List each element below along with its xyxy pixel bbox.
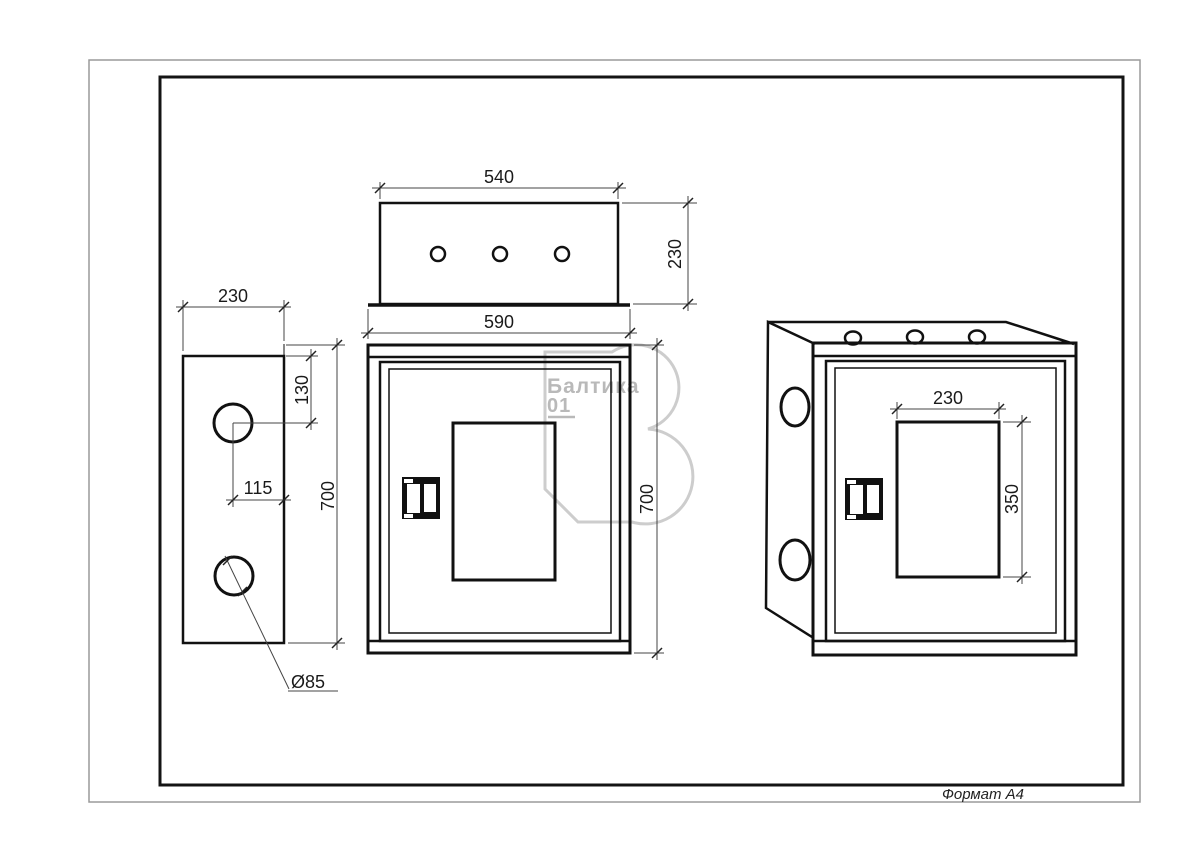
- iso-side-hole-2: [780, 540, 810, 580]
- leader-hole-diameter: [223, 556, 338, 691]
- dim-label-side-hole-top: 130: [292, 375, 312, 405]
- technical-drawing: Балтика 01 540 230 590: [0, 0, 1200, 848]
- iso-side-hole-1: [781, 388, 809, 426]
- front-window: [453, 423, 555, 580]
- side-hole-2: [215, 557, 253, 595]
- top-hole-1: [431, 247, 445, 261]
- top-hole-3: [555, 247, 569, 261]
- watermark-number: 01: [547, 395, 571, 417]
- front-handle: [402, 477, 440, 519]
- dim-label-side-hole-center: 115: [244, 478, 273, 498]
- iso-handle: [845, 478, 883, 520]
- dim-label-top-width: 540: [484, 167, 514, 187]
- dim-label-side-hole-dia: Ø85: [291, 672, 325, 692]
- format-label: Формат А4: [942, 786, 1024, 803]
- top-hole-2: [493, 247, 507, 261]
- iso-window: [897, 422, 999, 577]
- drawing-sheet: Балтика 01 540 230 590: [0, 0, 1200, 848]
- sheet-border: [89, 60, 1140, 802]
- iso-view: [766, 322, 1076, 655]
- dim-label-top-depth: 230: [665, 239, 685, 269]
- dim-label-iso-window-height: 350: [1002, 484, 1022, 514]
- dim-label-side-width: 230: [218, 286, 248, 306]
- dim-top-depth: [622, 196, 697, 311]
- top-view: [368, 203, 630, 305]
- dim-label-flange-width: 590: [484, 312, 514, 332]
- dim-label-iso-window-width: 230: [933, 388, 963, 408]
- dim-label-front-height: 700: [637, 484, 657, 514]
- iso-side-panel: [766, 322, 815, 637]
- dim-label-side-height: 700: [318, 481, 338, 511]
- dim-side-width: [176, 300, 291, 351]
